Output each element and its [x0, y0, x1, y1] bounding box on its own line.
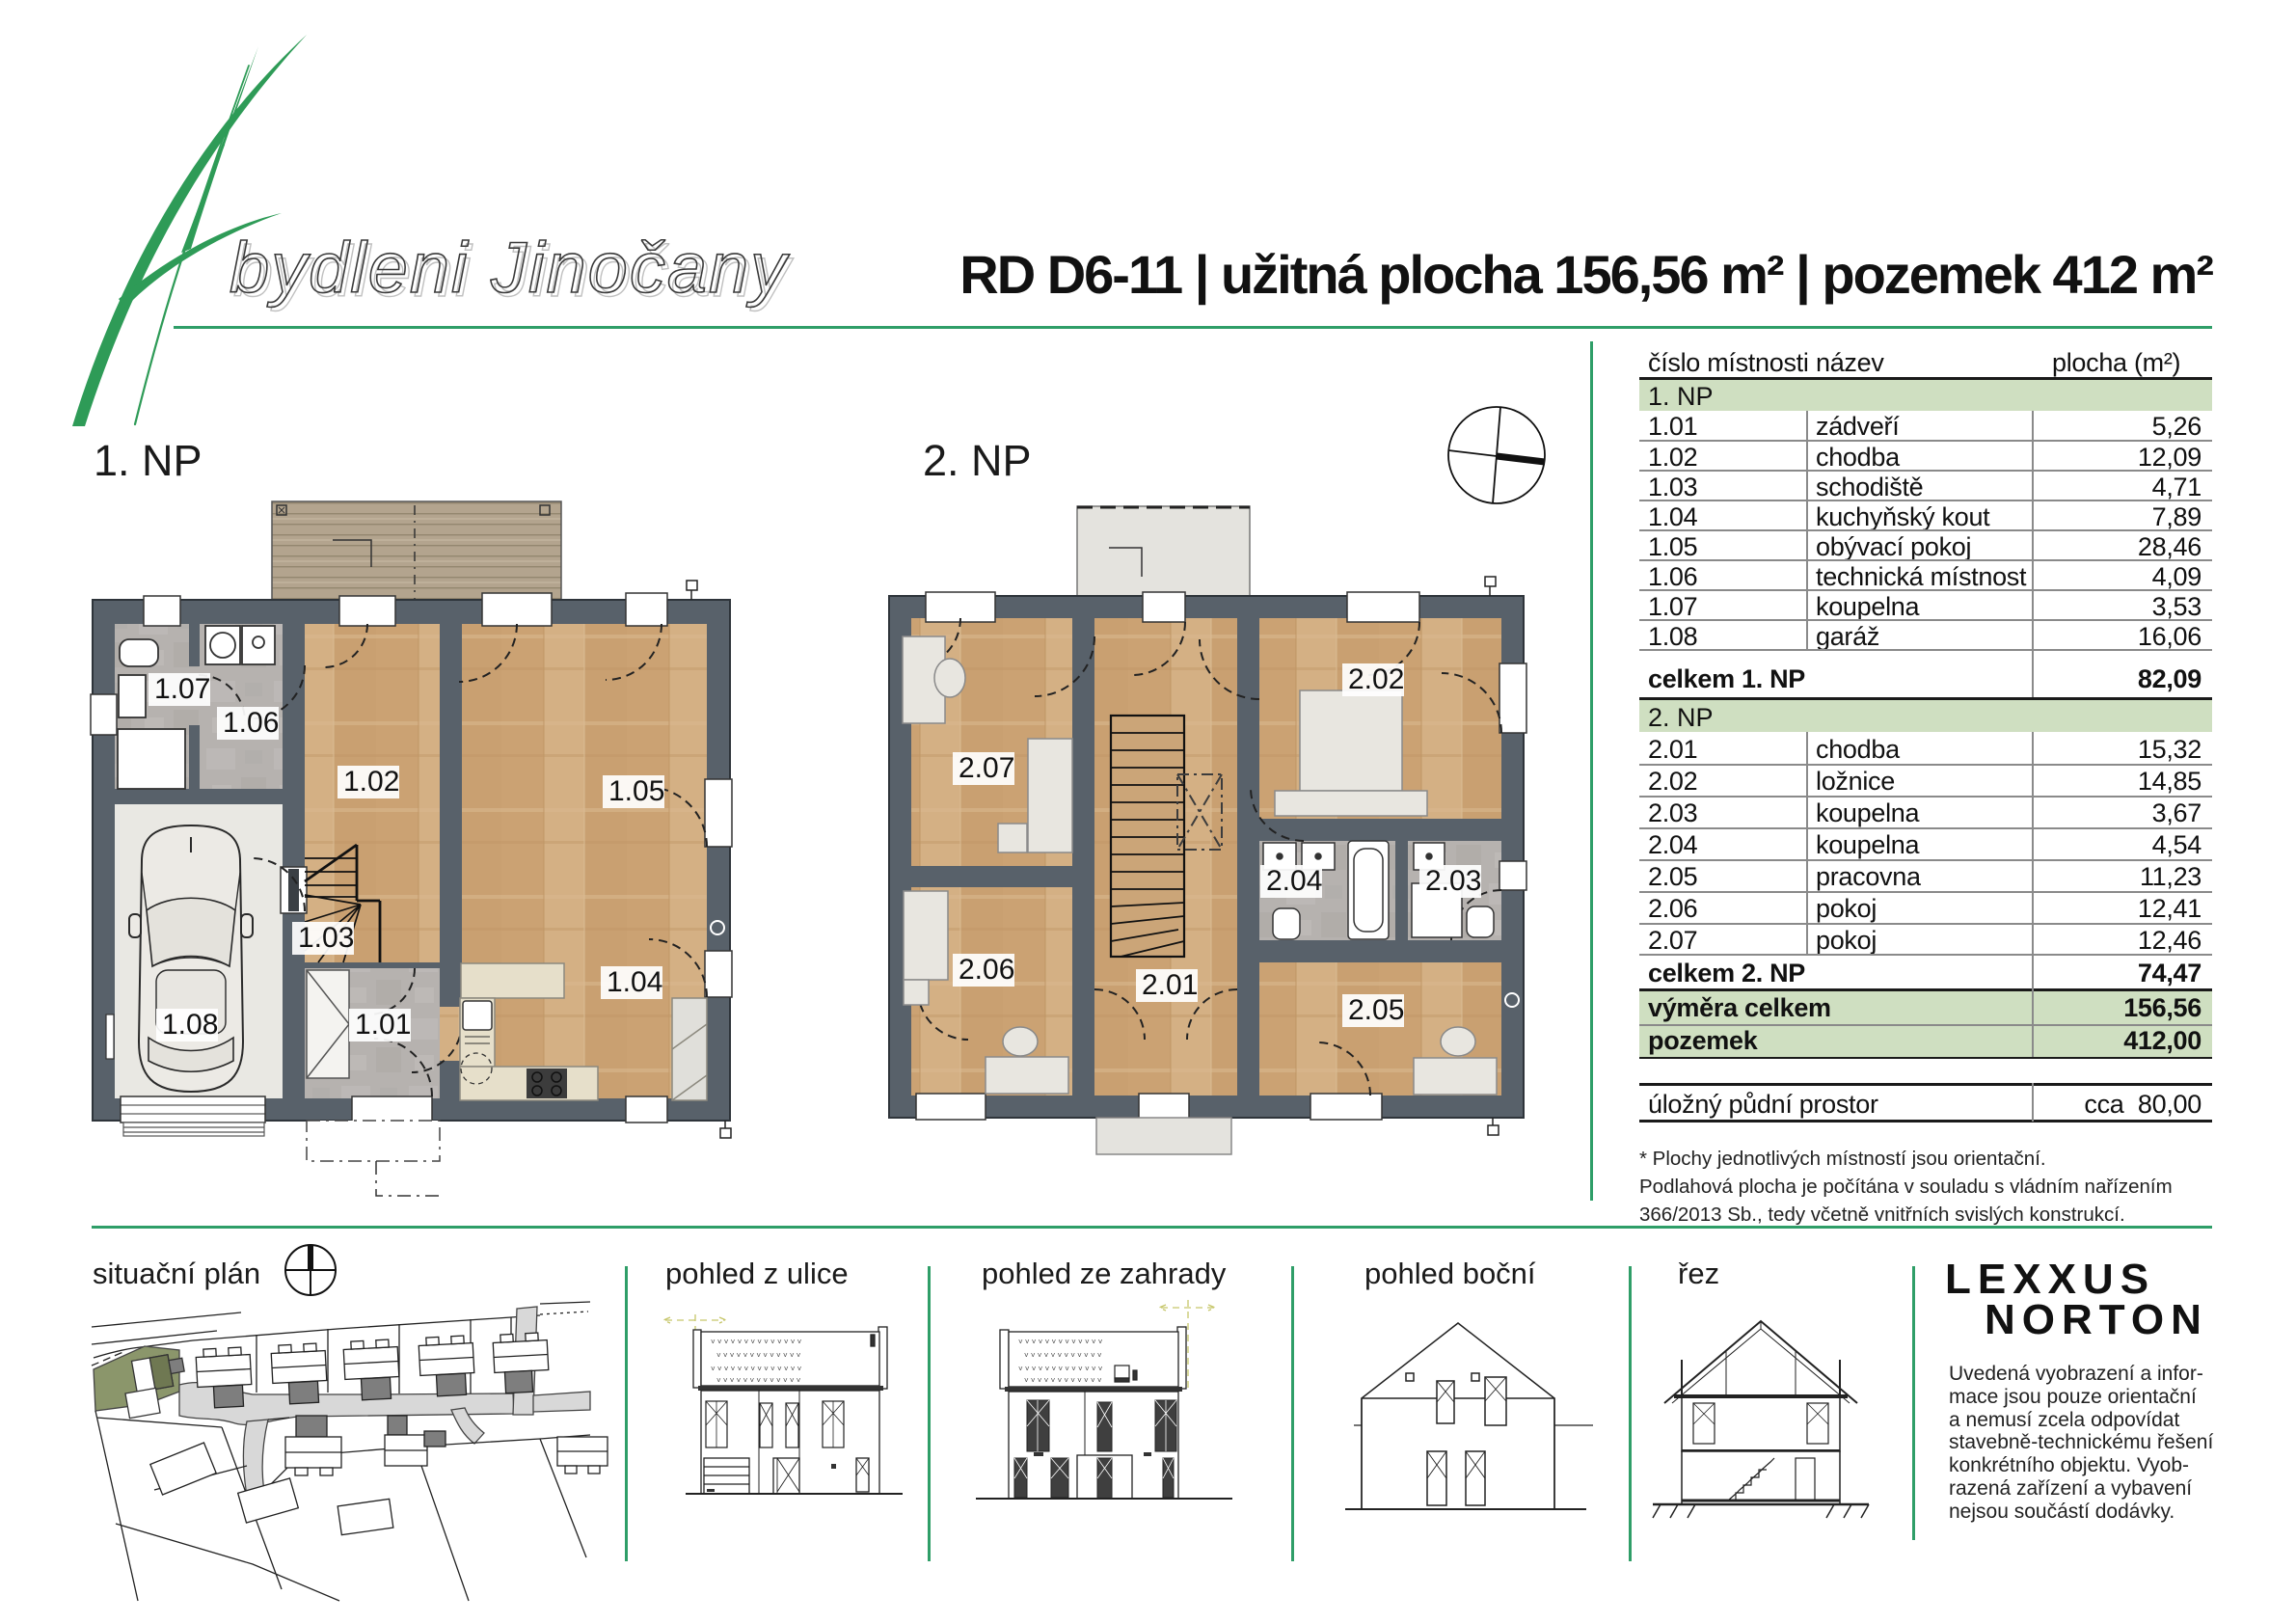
- svg-text:1.08: 1.08: [162, 1009, 218, 1041]
- svg-text:1.03: 1.03: [298, 922, 354, 954]
- svg-text:2.02: 2.02: [1348, 663, 1404, 695]
- svg-text:˅ ˅ ˅ ˅ ˅ ˅ ˅ ˅ ˅ ˅ ˅ ˅ ˅ ˅: ˅ ˅ ˅ ˅ ˅ ˅ ˅ ˅ ˅ ˅ ˅ ˅ ˅ ˅: [711, 1365, 802, 1373]
- svg-text:˅ ˅ ˅ ˅ ˅ ˅ ˅ ˅ ˅ ˅ ˅ ˅ ˅: ˅ ˅ ˅ ˅ ˅ ˅ ˅ ˅ ˅ ˅ ˅ ˅ ˅: [1018, 1365, 1103, 1373]
- svg-text:2.06: 2.06: [959, 954, 1014, 986]
- svg-text:1.06: 1.06: [223, 707, 279, 739]
- svg-text:1.04: 1.04: [607, 966, 662, 998]
- svg-text:2.07: 2.07: [959, 752, 1014, 784]
- svg-text:˅ ˅ ˅ ˅ ˅ ˅ ˅ ˅ ˅ ˅ ˅ ˅ ˅ ˅: ˅ ˅ ˅ ˅ ˅ ˅ ˅ ˅ ˅ ˅ ˅ ˅ ˅ ˅: [711, 1338, 802, 1346]
- svg-text:˅ ˅ ˅ ˅ ˅ ˅ ˅ ˅ ˅ ˅ ˅ ˅ ˅: ˅ ˅ ˅ ˅ ˅ ˅ ˅ ˅ ˅ ˅ ˅ ˅ ˅: [1018, 1338, 1103, 1346]
- svg-text:2.01: 2.01: [1142, 969, 1198, 1001]
- svg-text:1.07: 1.07: [154, 673, 210, 705]
- svg-text:2.04: 2.04: [1266, 865, 1322, 897]
- svg-text:˅ ˅ ˅ ˅ ˅ ˅ ˅ ˅ ˅ ˅ ˅ ˅ ˅: ˅ ˅ ˅ ˅ ˅ ˅ ˅ ˅ ˅ ˅ ˅ ˅ ˅: [716, 1351, 801, 1360]
- svg-text:2.03: 2.03: [1425, 865, 1481, 897]
- svg-text:1.02: 1.02: [343, 766, 399, 798]
- svg-text:˅ ˅ ˅ ˅ ˅ ˅ ˅ ˅ ˅ ˅ ˅ ˅: ˅ ˅ ˅ ˅ ˅ ˅ ˅ ˅ ˅ ˅ ˅ ˅: [1024, 1376, 1102, 1385]
- svg-text:2.05: 2.05: [1348, 994, 1404, 1026]
- svg-text:˅ ˅ ˅ ˅ ˅ ˅ ˅ ˅ ˅ ˅ ˅ ˅ ˅: ˅ ˅ ˅ ˅ ˅ ˅ ˅ ˅ ˅ ˅ ˅ ˅ ˅: [716, 1376, 801, 1385]
- svg-text:1.01: 1.01: [355, 1009, 411, 1041]
- svg-text:1.05: 1.05: [608, 775, 664, 807]
- svg-text:˅ ˅ ˅ ˅ ˅ ˅ ˅ ˅ ˅ ˅ ˅ ˅: ˅ ˅ ˅ ˅ ˅ ˅ ˅ ˅ ˅ ˅ ˅ ˅: [1024, 1351, 1102, 1360]
